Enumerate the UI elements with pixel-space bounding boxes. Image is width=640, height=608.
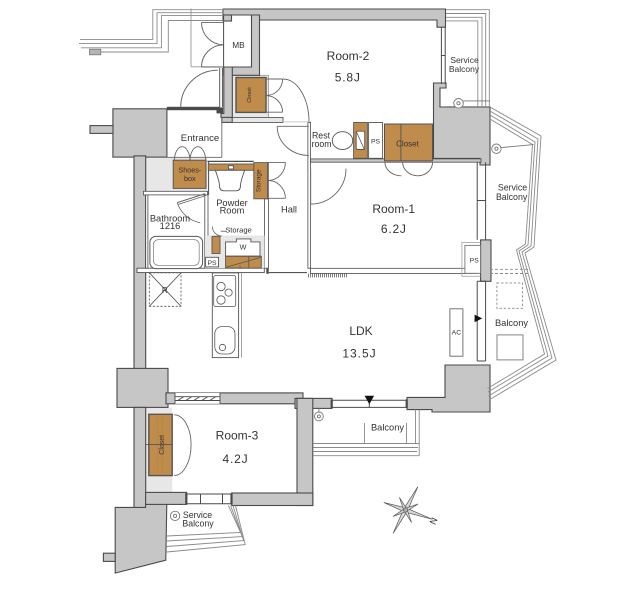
svg-text:Closet: Closet bbox=[247, 87, 253, 103]
svg-text:Service: Service bbox=[498, 182, 527, 192]
svg-text:Balcony: Balcony bbox=[371, 423, 404, 433]
svg-text:Closet: Closet bbox=[159, 435, 166, 455]
svg-text:LDK: LDK bbox=[349, 324, 372, 338]
svg-text:Balcony: Balcony bbox=[496, 192, 528, 202]
svg-text:PS: PS bbox=[371, 138, 381, 145]
svg-text:PS: PS bbox=[470, 258, 480, 265]
svg-text:Room: Room bbox=[220, 206, 245, 216]
svg-text:Room-2: Room-2 bbox=[327, 49, 370, 63]
svg-text:PS: PS bbox=[207, 260, 217, 267]
svg-text:Storage: Storage bbox=[256, 169, 263, 192]
svg-text:Entrance: Entrance bbox=[181, 133, 219, 144]
svg-text:1216: 1216 bbox=[160, 221, 181, 231]
svg-text:6.2J: 6.2J bbox=[381, 222, 407, 236]
svg-text:13.5J: 13.5J bbox=[342, 346, 376, 360]
svg-text:box: box bbox=[184, 174, 196, 183]
svg-text:5.8J: 5.8J bbox=[335, 71, 361, 85]
svg-text:R: R bbox=[162, 286, 168, 295]
svg-text:Balcony: Balcony bbox=[449, 64, 480, 74]
svg-text:Hall: Hall bbox=[281, 204, 297, 214]
svg-text:Closet: Closet bbox=[396, 140, 419, 149]
svg-text:Room-1: Room-1 bbox=[372, 202, 415, 216]
svg-text:Balcony: Balcony bbox=[495, 318, 528, 328]
svg-text:W: W bbox=[240, 243, 247, 252]
svg-text:AC: AC bbox=[452, 329, 462, 336]
svg-text:Storage: Storage bbox=[225, 225, 252, 234]
svg-text:MB: MB bbox=[232, 40, 245, 50]
svg-text:room: room bbox=[312, 139, 332, 149]
svg-text:Room-3: Room-3 bbox=[216, 429, 259, 443]
svg-text:4.2J: 4.2J bbox=[223, 452, 249, 466]
svg-text:Balcony: Balcony bbox=[182, 519, 214, 529]
